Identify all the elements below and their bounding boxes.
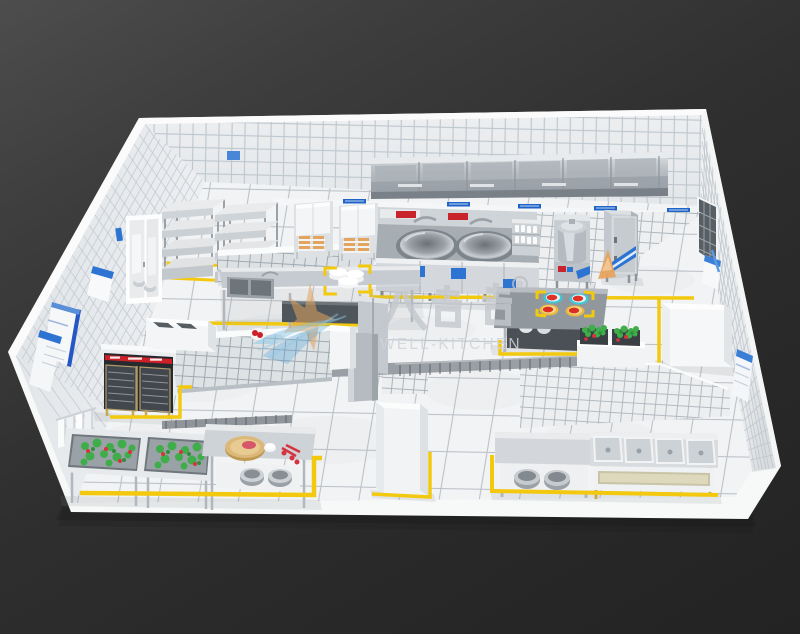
svg-text:WELL-KITCHEN: WELL-KITCHEN	[380, 336, 522, 353]
svg-text:R: R	[517, 280, 524, 290]
